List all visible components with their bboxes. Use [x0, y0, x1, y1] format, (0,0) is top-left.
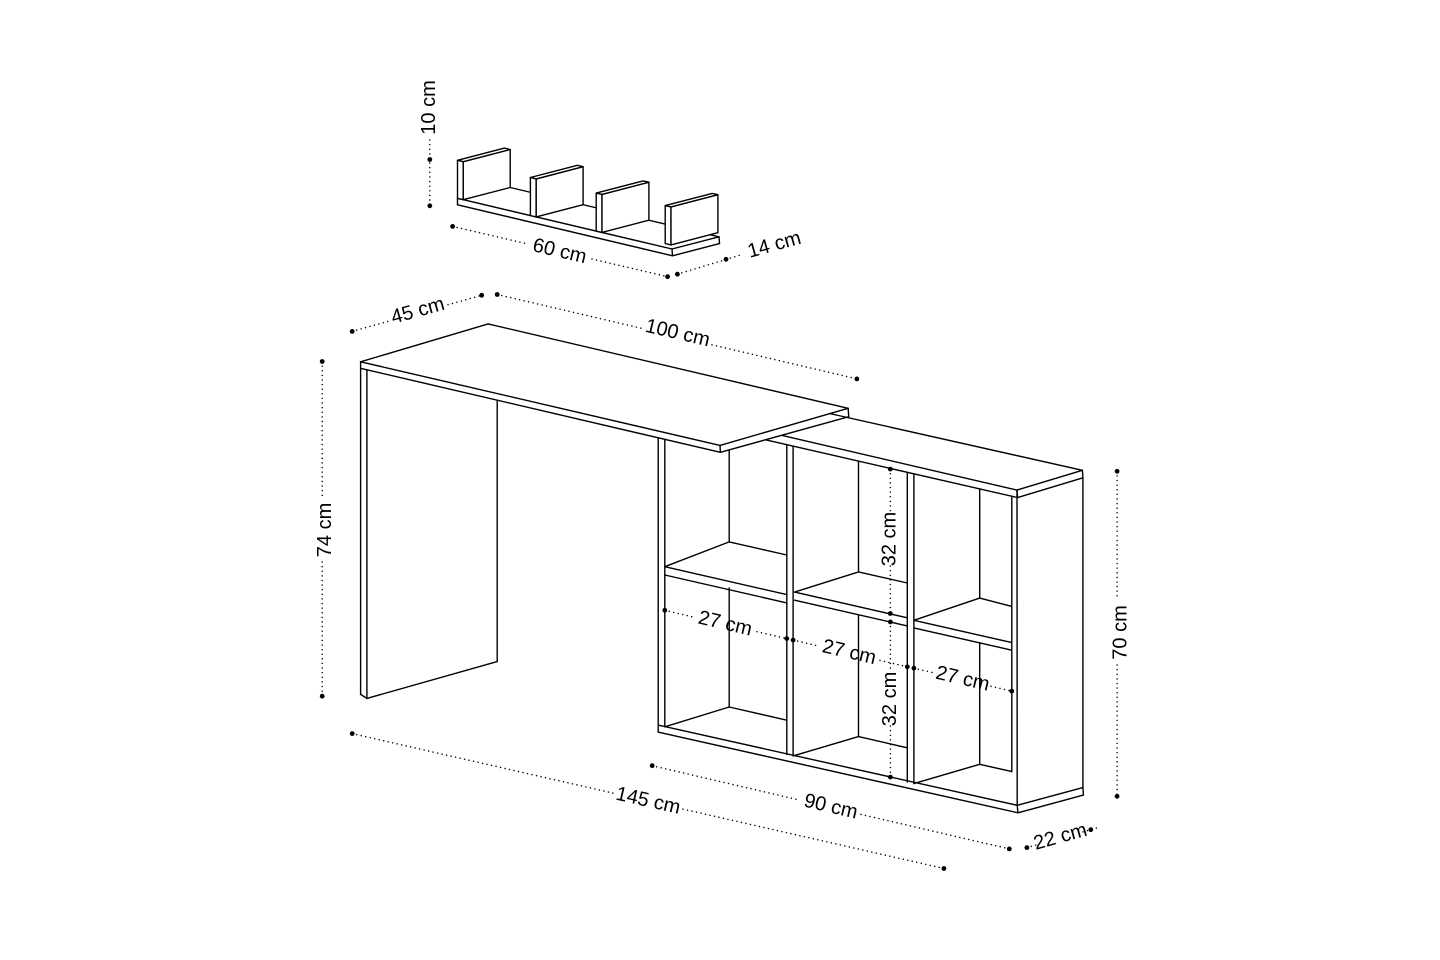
svg-text:32 cm: 32 cm [879, 512, 901, 566]
svg-text:70 cm: 70 cm [1109, 605, 1131, 659]
svg-text:32 cm: 32 cm [879, 672, 901, 726]
svg-text:74 cm: 74 cm [314, 503, 336, 557]
svg-text:10 cm: 10 cm [418, 80, 440, 134]
